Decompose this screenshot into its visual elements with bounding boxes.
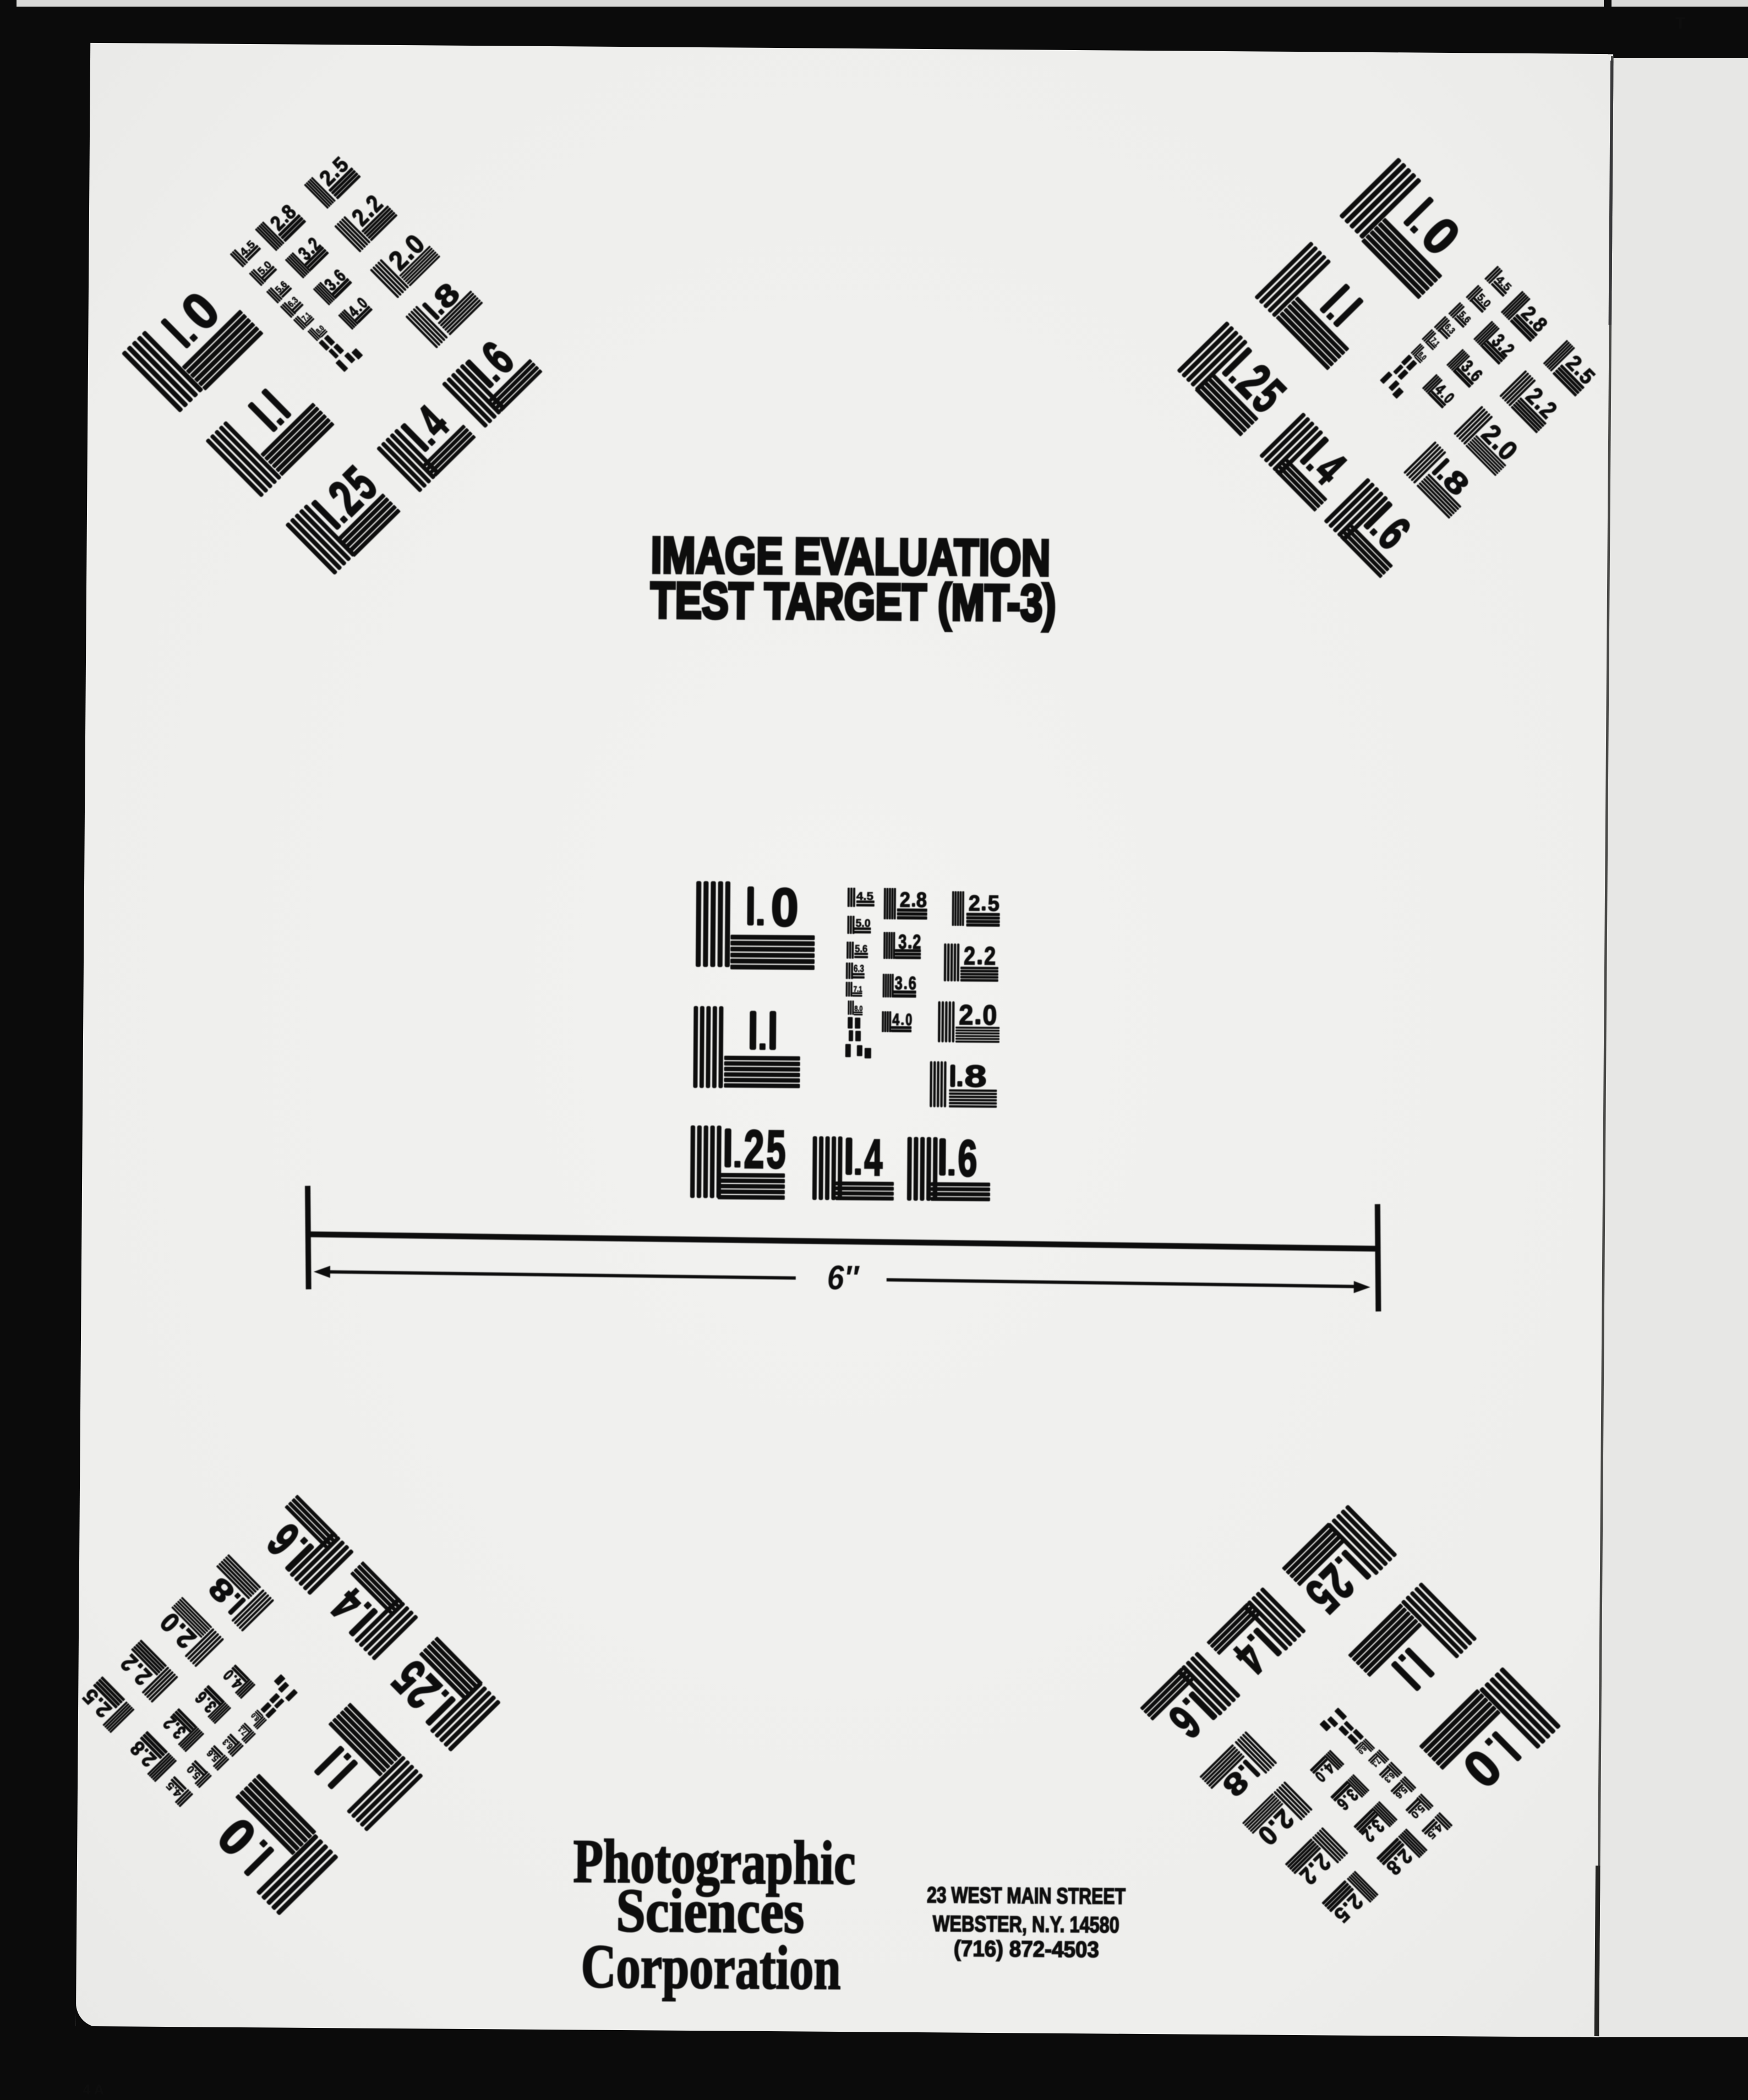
svg-text:(716) 872-4503: (716) 872-4503	[954, 1935, 1099, 1962]
svg-text:6″: 6″	[827, 1259, 860, 1297]
svg-text:23 WEST MAIN STREET: 23 WEST MAIN STREET	[927, 1882, 1126, 1909]
svg-text:WEBSTER, N.Y. 14580: WEBSTER, N.Y. 14580	[933, 1911, 1119, 1937]
svg-text:T: T	[1675, 14, 1685, 32]
svg-text:4A: 4A	[83, 2081, 107, 2098]
svg-text:TEST TARGET (MT-3): TEST TARGET (MT-3)	[650, 571, 1056, 631]
svg-text:Corporation: Corporation	[581, 1933, 841, 2003]
